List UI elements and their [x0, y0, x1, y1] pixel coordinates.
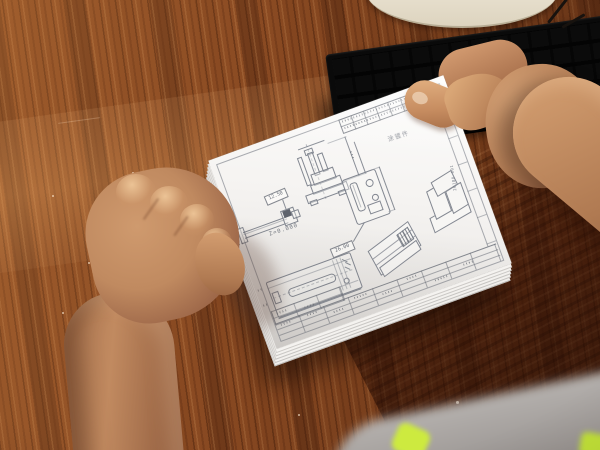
- photo-scene: 涂镀件: [0, 0, 600, 450]
- photo-vignette: [0, 0, 600, 450]
